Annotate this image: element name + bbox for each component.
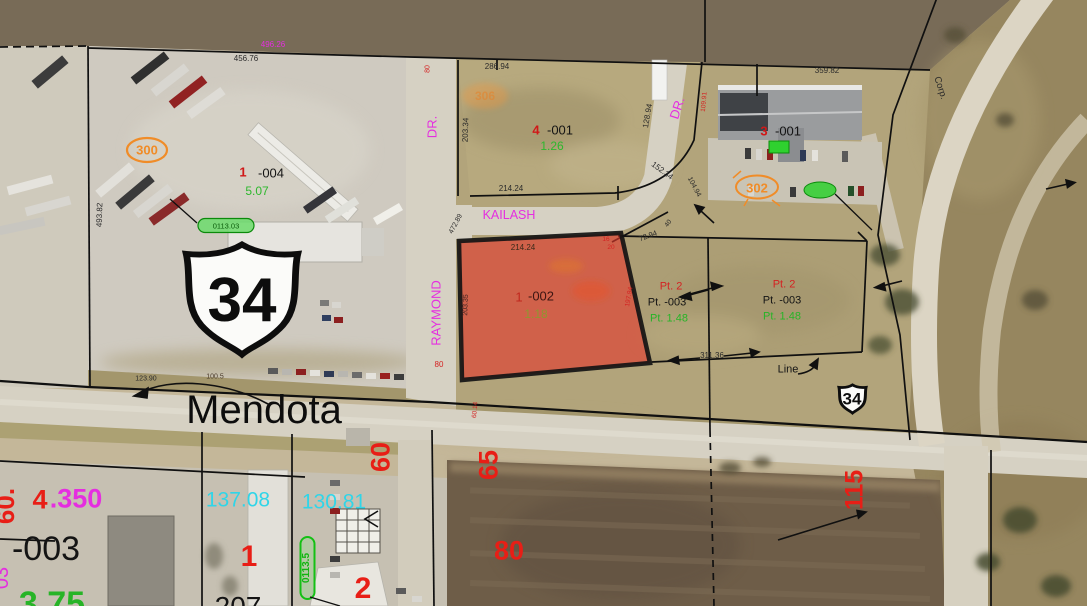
sw-warehouse <box>108 516 174 606</box>
green-oval-marker <box>804 182 836 198</box>
address-pill-truckstop <box>198 219 254 233</box>
selected-parcel[interactable] <box>459 233 650 380</box>
sw-building-tall <box>248 470 288 606</box>
green-box-marker <box>769 141 789 153</box>
sw-building-grid <box>336 509 380 553</box>
site-marker-306-oval <box>462 83 508 109</box>
gis-parcel-map-view: 456.76496.263001-0045.07493.820113.03123… <box>0 0 1087 606</box>
sw-building-angled <box>310 562 388 606</box>
aerial-map-canvas[interactable] <box>0 0 1087 606</box>
address-pill-south <box>301 537 315 599</box>
